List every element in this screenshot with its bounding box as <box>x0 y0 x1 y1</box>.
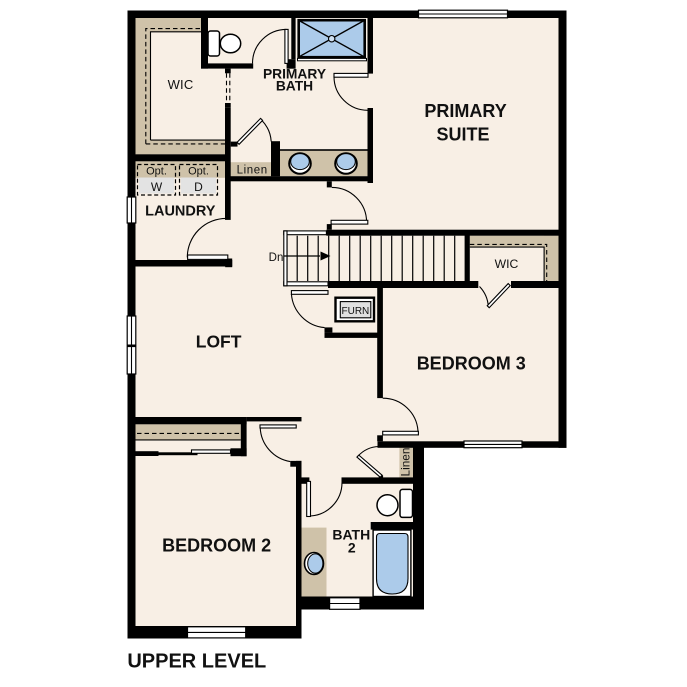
svg-text:SUITE: SUITE <box>436 125 489 145</box>
svg-text:Linen: Linen <box>237 164 268 176</box>
svg-text:PRIMARY: PRIMARY <box>424 101 506 121</box>
svg-text:BATH: BATH <box>276 79 313 94</box>
svg-text:W: W <box>151 180 163 194</box>
svg-text:UPPER LEVEL: UPPER LEVEL <box>127 650 266 672</box>
svg-text:FURN: FURN <box>342 306 370 317</box>
svg-text:BEDROOM 3: BEDROOM 3 <box>417 354 526 374</box>
svg-text:Opt.: Opt. <box>146 166 167 178</box>
svg-text:2: 2 <box>348 539 356 555</box>
svg-text:Linen: Linen <box>398 448 412 477</box>
svg-text:D: D <box>194 180 203 194</box>
svg-text:WIC: WIC <box>495 257 519 271</box>
svg-text:Opt.: Opt. <box>188 166 209 178</box>
svg-text:LAUNDRY: LAUNDRY <box>145 204 216 220</box>
svg-text:BEDROOM 2: BEDROOM 2 <box>162 536 271 556</box>
svg-text:Dn: Dn <box>269 252 284 264</box>
svg-text:WIC: WIC <box>168 77 194 92</box>
svg-text:LOFT: LOFT <box>196 331 242 351</box>
